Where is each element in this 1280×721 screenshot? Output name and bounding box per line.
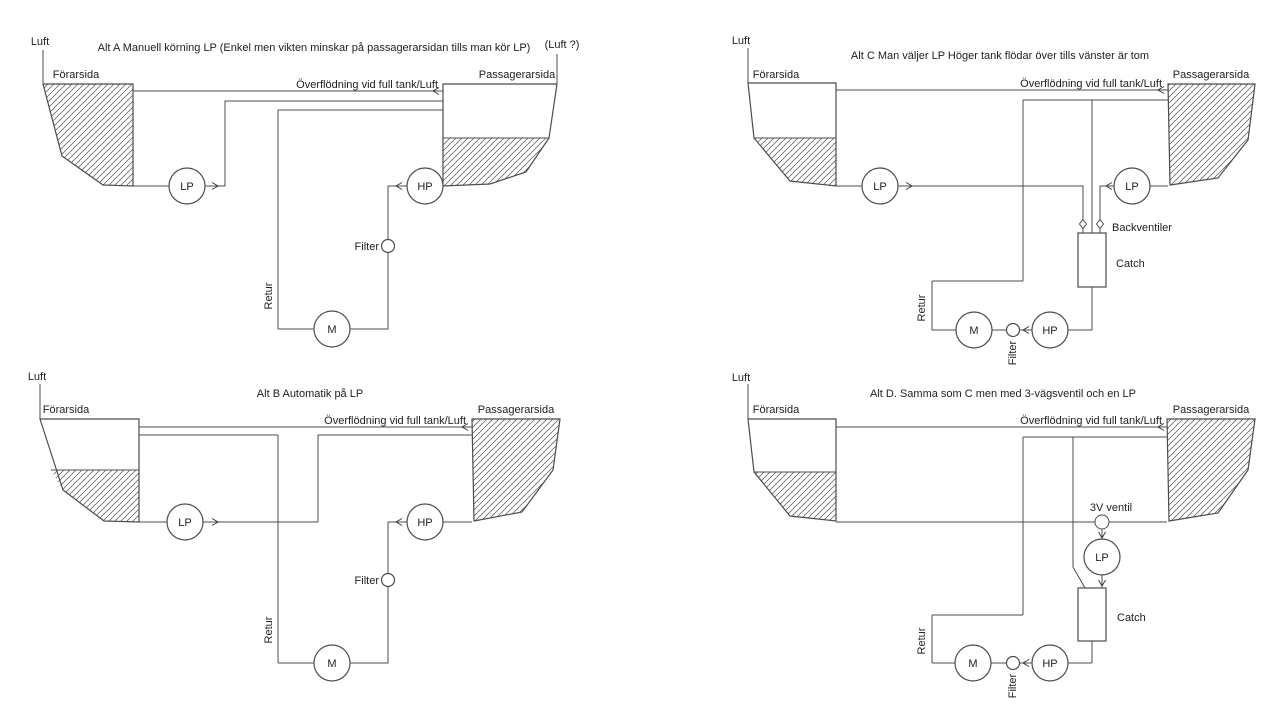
alt-a-return-label: Retur [263,282,275,309]
alt-c-check-valves-label: Backventiler [1112,222,1172,234]
alt-c-diagram: Luft Alt C Man väljer LP Höger tank flöd… [732,35,1255,365]
alt-c-return-label: Retur [916,294,928,321]
alt-b-title: Alt B Automatik på LP [257,388,363,400]
alt-d-lp-label: LP [1095,552,1108,564]
alt-b-return-label: Retur [263,616,275,643]
alt-b-passenger-tank [472,419,560,521]
alt-b-driver-side-label: Förarsida [43,404,90,416]
alt-d-passenger-tank [1167,419,1255,521]
alt-c-hp-label: HP [1042,325,1057,337]
alt-c-passenger-side-label: Passagerarsida [1173,69,1250,81]
alt-d-return-label: Retur [916,627,928,654]
alt-d-three-way-valve [1095,515,1109,529]
alt-c-lp-left-label: LP [873,181,886,193]
alt-d-motor-label: M [968,658,977,670]
alt-b-motor-label: M [327,658,336,670]
alt-a-passenger-side-label: Passagerarsida [479,69,556,81]
alt-d-catch-tank [1078,588,1106,641]
alt-a-title: Alt A Manuell körning LP (Enkel men vikt… [98,42,531,54]
alt-a-motor-label: M [327,324,336,336]
alt-c-check-valve-left [1080,220,1087,229]
alt-b-filter-label: Filter [355,575,380,587]
alt-c-driver-tank [748,83,836,186]
alt-d-air-label: Luft [732,372,750,384]
alt-b-driver-tank [40,419,139,522]
alt-c-title: Alt C Man väljer LP Höger tank flödar öv… [851,50,1149,62]
alt-c-catch-tank [1078,233,1106,287]
alt-d-diagram: Luft Alt D. Samma som C men med 3-vägsve… [732,372,1255,698]
alt-d-passenger-side-label: Passagerarsida [1173,404,1250,416]
alt-a-overflow-label: Överflödning vid full tank/Luft [296,79,438,91]
alt-c-flow-arrows [906,87,1164,334]
alt-a-flow-arrows [212,88,439,190]
alt-b-air-label: Luft [28,371,46,383]
alt-b-passenger-side-label: Passagerarsida [478,404,555,416]
alt-d-overflow-label: Överflödning vid full tank/Luft [1020,415,1162,427]
alt-a-driver-side-label: Förarsida [53,69,100,81]
alt-c-catch-label: Catch [1116,258,1145,270]
schematic-page: Luft (Luft ?) Alt A Manuell körning LP (… [0,0,1280,721]
alt-a-filter [382,240,395,253]
alt-a-air-right-label: (Luft ?) [545,39,580,51]
alt-d-catch-label: Catch [1117,612,1146,624]
alt-b-filter [382,574,395,587]
alt-d-three-way-valve-label: 3V ventil [1090,502,1132,514]
alt-c-motor-label: M [969,325,978,337]
alt-c-air-label: Luft [732,35,750,47]
alt-a-driver-tank [43,84,133,186]
alt-c-driver-side-label: Förarsida [753,69,800,81]
alt-a-diagram: Luft (Luft ?) Alt A Manuell körning LP (… [31,36,580,347]
alt-c-filter [1007,324,1020,337]
alt-d-filter-label: Filter [1007,673,1019,698]
alt-d-filter [1007,657,1020,670]
alt-b-lp-label: LP [178,517,191,529]
alt-a-hp-label: HP [417,181,432,193]
alt-c-filter-label: Filter [1007,340,1019,365]
alt-a-filter-label: Filter [355,241,380,253]
fuel-system-schematic: Luft (Luft ?) Alt A Manuell körning LP (… [0,0,1280,721]
alt-a-passenger-tank [443,84,557,186]
alt-d-hp-label: HP [1042,658,1057,670]
alt-c-lp-right-label: LP [1125,181,1138,193]
alt-d-title: Alt D. Samma som C men med 3-vägsventil … [870,388,1136,400]
alt-b-hp-label: HP [417,517,432,529]
alt-b-diagram: Luft Alt B Automatik på LP Förarsida Pas… [28,371,560,681]
alt-a-lp-label: LP [180,181,193,193]
alt-a-air-label: Luft [31,36,49,48]
alt-c-passenger-tank [1168,84,1255,185]
alt-d-driver-side-label: Förarsida [753,404,800,416]
alt-c-check-valve-right [1097,220,1104,229]
alt-d-driver-tank [748,419,836,521]
alt-b-overflow-label: Överflödning vid full tank/Luft [324,415,466,427]
alt-c-overflow-label: Överflödning vid full tank/Luft [1020,78,1162,90]
